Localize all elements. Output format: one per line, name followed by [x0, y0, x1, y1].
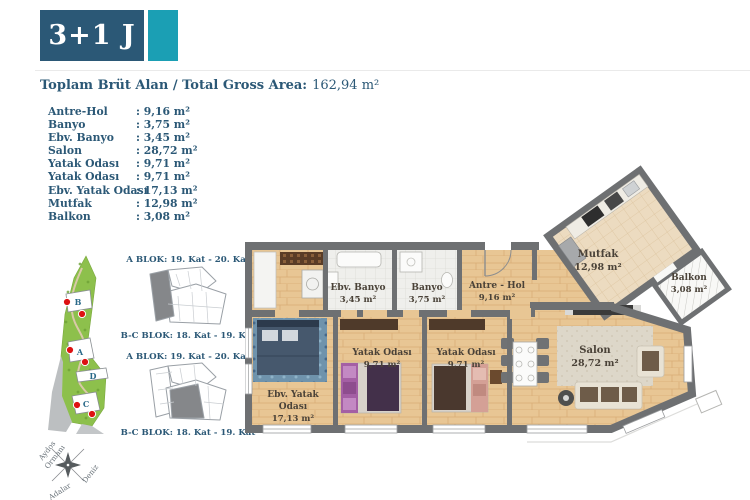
room-list-item: Ebv. Banyo: 3,45 m² [48, 131, 197, 144]
room-area: : 3,75 m² [136, 118, 190, 131]
entry-cabinet [254, 252, 276, 308]
accent-square [148, 10, 178, 61]
ebv-yatak-label2: Odası [279, 402, 308, 412]
compass-adalar: Adalar [46, 481, 73, 500]
yatak2-area: 9,71 m² [448, 360, 485, 370]
ebv-yatak-label1: Ebv. Yatak [267, 390, 319, 400]
room-list-item: Yatak Odası: 9,71 m² [48, 157, 197, 170]
armchair-cushion [642, 351, 659, 371]
room-list-item: Salon: 28,72 m² [48, 144, 197, 157]
room-area: : 9,71 m² [136, 170, 190, 183]
wardrobe-1 [340, 319, 398, 330]
wardrobe-2 [429, 319, 485, 330]
master-pillow [262, 330, 278, 341]
block-caption-bc-top: B-C BLOK: 18. Kat - 19. Kat [118, 331, 258, 341]
ebv-banyo-area: 3,45 m² [340, 295, 377, 305]
coat-closet [280, 252, 324, 265]
washer-icon [302, 270, 323, 298]
entrance-opening [485, 242, 511, 250]
bed2-blanket [434, 366, 466, 410]
gross-area-label: Toplam Brüt Alan / Total Gross Area: [40, 78, 307, 93]
room-area: : 3,45 m² [136, 131, 190, 144]
room-name: Antre-Hol [48, 105, 136, 118]
room-name: Banyo [48, 118, 136, 131]
block-caption-a-bottom: A BLOK: 19. Kat - 20. Kat [118, 352, 258, 362]
room-name: Ebv. Yatak Odası [48, 184, 136, 197]
yatak1-label: Yatak Odası [351, 348, 412, 358]
master-pillow [282, 330, 298, 341]
bathtub-icon [337, 252, 381, 267]
compass: Aydos Ormanı Deniz Adalar [36, 432, 146, 500]
block-b-label: B [75, 297, 82, 307]
block-a-label: A [76, 347, 84, 357]
nightstand-2 [490, 370, 502, 384]
mutfak-area: 12,98 m² [574, 262, 621, 273]
room-area: : 9,71 m² [136, 157, 190, 170]
room-area: : 3,08 m² [136, 210, 190, 223]
gross-area-line: Toplam Brüt Alan / Total Gross Area:162,… [40, 78, 379, 93]
room-name: Yatak Odası [48, 157, 136, 170]
master-headboard [257, 320, 319, 327]
room-area: : 28,72 m² [136, 144, 197, 157]
ebv-banyo-label: Ebv. Banyo [331, 283, 386, 293]
floor-plan: Mutfak 12,98 m² Balkon 3,08 m² Ebv. Bany… [245, 158, 750, 470]
salon-area: 28,72 m² [571, 358, 618, 369]
room-name: Mutfak [48, 197, 136, 210]
room-list-item: Yatak Odası: 9,71 m² [48, 170, 197, 183]
room-list: Antre-Hol: 9,16 m² Banyo: 3,75 m² Ebv. B… [48, 105, 197, 223]
room-area: : 9,16 m² [136, 105, 190, 118]
room-name: Balkon [48, 210, 136, 223]
block-c-label: C [83, 399, 89, 409]
balkon-label: Balkon [671, 273, 707, 283]
banyo-area: 3,75 m² [409, 295, 446, 305]
room-list-item: Antre-Hol: 9,16 m² [48, 105, 197, 118]
room-list-item: Banyo: 3,75 m² [48, 118, 197, 131]
mutfak-label: Mutfak [578, 249, 620, 260]
room-area: : 17,13 m² [136, 184, 197, 197]
room-name: Ebv. Banyo [48, 131, 136, 144]
shower-icon [400, 252, 422, 272]
block-caption-bc-bottom: B-C BLOK: 18. Kat - 19. Kat [118, 428, 258, 438]
floorplan-page: 3+1 J Toplam Brüt Alan / Total Gross Are… [0, 0, 750, 500]
salon-label: Salon [579, 345, 611, 356]
room-list-item: Ebv. Yatak Odası: 17,13 m² [48, 184, 197, 197]
sofa-cushions [580, 387, 637, 402]
compass-deniz: Deniz [80, 462, 100, 484]
balkon-area: 3,08 m² [671, 285, 708, 295]
room-name: Salon [48, 144, 136, 157]
site-plan: B A D C [38, 252, 114, 434]
block-d-label: D [90, 371, 97, 381]
gross-area-value: 162,94 m² [312, 78, 379, 93]
antre-label: Antre - Hol [468, 281, 526, 291]
antre-area: 9,16 m² [479, 293, 516, 303]
unit-type-badge: 3+1 J [40, 10, 144, 61]
bed1-blanket [367, 365, 399, 411]
banyo-label: Banyo [411, 283, 442, 293]
room-name: Yatak Odası [48, 170, 136, 183]
exterior-ledge [696, 390, 722, 412]
room-area: : 12,98 m² [136, 197, 197, 210]
block-caption-a-top: A BLOK: 19. Kat - 20. Kat [118, 255, 258, 265]
room-list-item: Mutfak: 12,98 m² [48, 197, 197, 210]
toilet-icon [442, 273, 453, 288]
block-diagram-2 [146, 362, 230, 424]
yatak1-area: 9,71 m² [364, 360, 401, 370]
header-divider [35, 70, 750, 71]
room-list-item: Balkon: 3,08 m² [48, 210, 197, 223]
block-diagram-1 [146, 266, 230, 328]
ebv-yatak-area: 17,13 m² [272, 414, 315, 424]
yatak2-label: Yatak Odası [435, 348, 496, 358]
